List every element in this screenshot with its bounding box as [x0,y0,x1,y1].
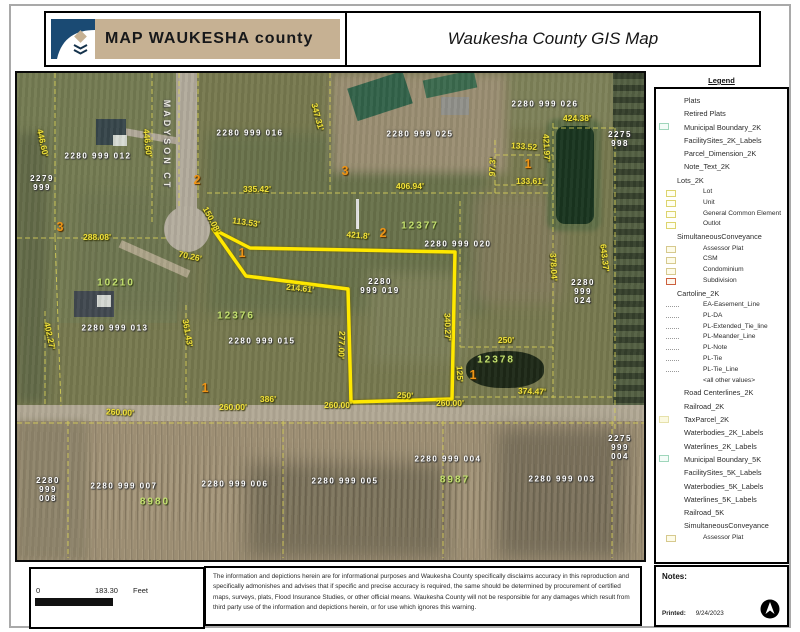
legend-item: CSM [656,254,787,265]
legend-item: <all other values> [656,376,787,387]
legend-item: PL-Note [656,343,787,354]
lot-label: 2 [380,226,387,240]
yellow-swatch [666,211,676,218]
dim-label: 424.38' [563,114,591,124]
legend-item: Lot [656,187,787,198]
scale-bar-panel: 0 183.30 Feet [29,567,205,629]
parcel-label: 2280 999 016 [217,128,284,137]
dim-label: 402.27' [41,321,56,350]
map-viewport[interactable]: 2280 999 0122279 9992280 999 0162280 999… [15,71,646,562]
scale-zero-label: 0 [36,586,40,595]
cream-swatch [666,535,676,542]
line-swatch [666,338,679,339]
parcel-label: 2280 999 012 [65,151,132,160]
dim-label: 378.04' [547,253,558,282]
legend-item: Assessor Plat [656,533,787,544]
legend-item: General Common Element [656,209,787,220]
notes-panel: Notes: Printed:9/24/2023 [654,565,789,627]
lot-label: 1 [239,246,246,260]
pale-swatch [659,416,669,423]
legend-item: SimultaneousConveyance [656,230,787,243]
notes-title: Notes: [662,572,687,581]
legend-title: Legend [654,76,789,85]
legend-item: Municipal Boundary_2K [656,121,787,134]
lot-label: 1 [525,157,532,171]
dim-label: 214.61' [286,283,315,296]
parcel-label: 2280 999 025 [387,129,454,138]
dim-label: 643.37' [597,243,610,272]
logo-banner: MAP WAUKESHA county [51,19,340,59]
legend-item: Road Centerlines_2K [656,386,787,399]
dim-label: 347.31' [309,102,326,132]
legend-item: Waterlines_2K_Labels [656,440,787,453]
dim-label: 421.8' [346,230,370,242]
cream-swatch [666,268,676,275]
scale-bar [35,598,113,606]
dim-label: 361.43' [180,318,194,347]
disclaimer-text: The information and depictions herein ar… [204,566,642,626]
dim-label: 446.60' [34,128,49,157]
legend-item: Retired Plats [656,107,787,120]
dim-label: 133.52 [511,141,538,153]
lot-label: 3 [57,220,64,234]
line-swatch [666,349,679,350]
legend-item: Subdivision [656,276,787,287]
street-label: MADYSON CT [162,100,172,191]
dim-label: 288.08' [83,233,111,243]
legend-item: PL-Tie_Line [656,365,787,376]
addr-label: 8980 [140,496,170,508]
parcel-label: 2280 999 006 [202,479,269,488]
parcel-label: 2280 999 019 [360,277,399,295]
dim-label: 446.60' [141,129,154,158]
yellow-swatch [666,190,676,197]
addr-label: 10210 [97,277,135,289]
dim-label: 340.27' [442,313,453,341]
dim-label: 133.61' [516,177,544,187]
yellow-swatch [666,200,676,207]
north-arrow-icon [760,599,780,619]
dim-label: 277.00' [336,331,347,359]
addr-label: 8987 [440,474,470,486]
legend-item: Unit [656,198,787,209]
parcel-label: 2275 998 [608,130,632,148]
legend-item: PL-Meander_Line [656,332,787,343]
lot-label: 3 [342,164,349,178]
parcel-label: 2280 999 020 [425,239,492,248]
cream-swatch [666,246,676,253]
legend-item: Assessor Plat [656,244,787,255]
dim-label: 406.94' [396,182,424,192]
line-swatch [666,360,679,361]
legend-item: Cartoline_2K [656,287,787,300]
dim-label: 150.08' [200,205,222,234]
legend-item: Municipal Boundary_5K [656,453,787,466]
legend-item: Lots_2K [656,174,787,187]
legend-item: Waterbodies_2K_Labels [656,426,787,439]
dim-label: 250' [498,336,514,346]
legend-item: Plats [656,94,787,107]
teal-swatch [659,455,669,462]
line-swatch [666,328,679,329]
dim-label: 70.26' [178,250,203,264]
parcel-label: 2280 999 007 [91,481,158,490]
dim-label: 125' [454,366,465,383]
legend-item: Railroad_2K [656,400,787,413]
legend-item: PL-Extended_Tie_line [656,322,787,333]
legend-panel: PlatsRetired PlatsMunicipal Boundary_2KF… [654,87,789,564]
dim-label: 250' [397,391,414,402]
lot-label: 1 [470,368,477,382]
legend-item: Note_Text_2K [656,160,787,173]
yellow-swatch [666,222,676,229]
header-logo: MAP WAUKESHA county [44,11,347,67]
line-swatch [666,306,679,307]
legend-item: EA-Easement_Line [656,300,787,311]
parcel-label: 2280 999 015 [229,336,296,345]
lot-label: 1 [202,381,209,395]
cream-swatch [666,257,676,264]
legend-item: FacilitySites_5K_Labels [656,466,787,479]
dim-label: 260.00' [106,407,135,418]
page-title: Waukesha County GIS Map [448,29,658,49]
parcel-label: 2280 999 004 [415,454,482,463]
logo-text: MAP WAUKESHA county [95,30,313,48]
scale-distance-label: 183.30 [95,586,118,595]
legend-item: Outlot [656,219,787,230]
dim-label: 260.00' [324,401,352,411]
printed-date: 9/24/2023 [696,610,724,617]
legend-item: Parcel_Dimension_2K [656,147,787,160]
parcel-label: 2280 999 013 [82,323,149,332]
map-waukesha-logo-icon [51,19,95,59]
line-swatch [666,371,679,372]
parcel-label: 2280 999 005 [312,476,379,485]
scale-unit-label: Feet [133,586,148,595]
printed-row: Printed:9/24/2023 [662,610,724,617]
line-swatch [666,317,679,318]
dim-label: 97.3' [488,158,498,177]
lot-label: 2 [194,173,201,187]
dim-label: 374.47' [518,387,546,398]
dim-label: 260.00' [436,399,464,409]
dim-label: 421.97' [540,134,551,163]
title-box: Waukesha County GIS Map [345,11,761,67]
dim-label: 113.53' [232,216,261,230]
legend-item: SimultaneousConveyance [656,519,787,532]
legend-item: PL-DA [656,311,787,322]
red-swatch [666,278,676,285]
addr-label: 12376 [217,310,255,322]
parcel-label: 2280 999 008 [36,476,60,504]
dim-label: 386' [260,395,276,405]
parcel-label: 2280 999 003 [529,474,596,483]
legend-item: Waterlines_5K_Labels [656,493,787,506]
legend-item: PL-Tie [656,354,787,365]
legend-item: Railroad_5K [656,506,787,519]
printed-label: Printed: [662,610,686,617]
legend-list: PlatsRetired PlatsMunicipal Boundary_2KF… [656,94,787,543]
dim-label: 335.42' [243,185,271,195]
addr-label: 12378 [477,354,515,366]
parcel-label: 2279 999 [30,174,54,192]
addr-label: 12377 [401,220,439,232]
teal-swatch [659,123,669,130]
legend-item: Condominium [656,265,787,276]
dim-label: 260.00' [219,403,247,413]
parcel-label: 2275 999 004 [608,434,632,462]
map-labels-layer: 2280 999 0122279 9992280 999 0162280 999… [17,73,644,560]
parcel-label: 2280 999 024 [571,278,595,306]
parcel-label: 2280 999 026 [512,99,579,108]
legend-item: FacilitySites_2K_Labels [656,134,787,147]
legend-item: TaxParcel_2K [656,413,787,426]
legend-item: Waterbodies_5K_Labels [656,480,787,493]
